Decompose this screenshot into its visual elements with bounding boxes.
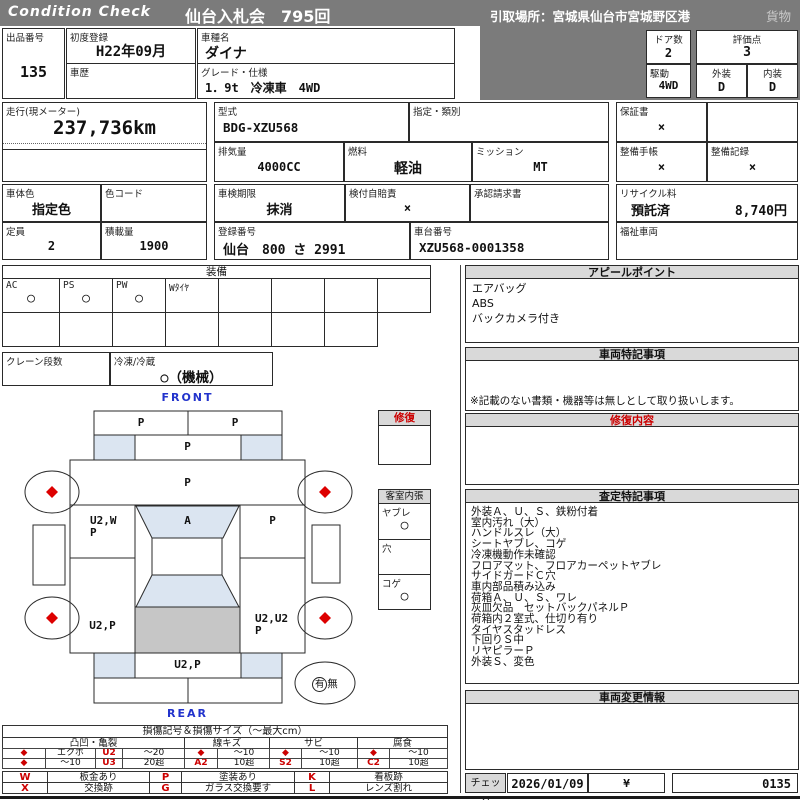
check-yen-cell: ¥: [588, 773, 665, 793]
right-step: [312, 525, 340, 583]
capacity-box: 定員 2: [2, 222, 101, 260]
equip-ps-value: ○: [60, 291, 112, 306]
drive-label: 駆動: [650, 66, 669, 80]
legend-sym-g: G: [149, 782, 182, 794]
brand-title: Condition Check: [8, 4, 151, 20]
recycle-fee: 8,740円: [735, 200, 787, 219]
panel-mark-front-bumper-r: P: [188, 417, 282, 429]
class-label: 指定・類別: [413, 104, 461, 118]
chassis-box: 車台番号 XZU568-0001358: [410, 222, 609, 260]
side-right-mark-2: P: [255, 625, 288, 637]
welfare-box: 福祉車両: [616, 222, 798, 260]
equipment-cell: [271, 312, 325, 347]
welfare-label: 福祉車両: [620, 224, 658, 238]
color-code-label: 色コード: [105, 186, 143, 200]
panel-mark-hood: P: [135, 441, 240, 453]
equip-pw-value: ○: [113, 291, 165, 306]
panel-mark-rear-panel: U2,P: [135, 659, 240, 671]
equipment-title: 装備: [206, 266, 227, 278]
drive-box: 駆動 4WD: [646, 64, 691, 98]
spare-yes: 有: [312, 677, 327, 692]
drive-value: 4WD: [647, 79, 690, 92]
first-reg-value: H22年09月: [67, 41, 195, 61]
exterior-value: D: [697, 80, 746, 94]
divider-solid: [3, 149, 206, 150]
rear-label: REAR: [135, 707, 240, 720]
legend-desc: ガラス交換要す: [181, 782, 295, 794]
score-value: 3: [697, 45, 797, 60]
load-label: 積載量: [105, 224, 134, 238]
recycle-status: 預託済: [631, 200, 670, 219]
divider-dotted: [3, 143, 206, 144]
appeal-header: アピールポイント: [465, 265, 799, 279]
interior-grade-box: 内装 D: [747, 64, 798, 98]
crane-label: クレーン段数: [6, 354, 63, 368]
equip-wtire-label: Wﾀｲﾔ: [169, 280, 189, 294]
equipment-cell: [377, 278, 431, 313]
approval-box: 承認請求書: [470, 184, 609, 222]
repair-body: [465, 426, 799, 485]
auction-title: 仙台入札会 795回: [185, 3, 330, 27]
first-registration-box: 初度登録 H22年09月: [66, 28, 196, 64]
reg-no-value: 仙台 800 さ 2991: [223, 239, 345, 258]
front-corner-right: [241, 435, 282, 460]
history-box: 車歴: [66, 63, 196, 99]
left-step: [33, 525, 65, 585]
equipment-header: 装備: [2, 265, 431, 279]
legend-desc: 交換跡: [47, 782, 150, 794]
lot-number: 135: [3, 63, 64, 81]
damage-diamond-icon: [46, 612, 58, 624]
recycle-box: リサイクル料 預託済 8,740円: [616, 184, 798, 222]
legend-code-c2: C2: [357, 758, 390, 769]
equipment-cell: [324, 312, 378, 347]
exterior-grade-box: 外装 D: [696, 64, 747, 98]
equip-ac-value: ○: [3, 291, 59, 306]
legend-code-u3: U3: [95, 758, 123, 769]
change-info-body: [465, 703, 799, 770]
appeal-line: バックカメラ付き: [472, 311, 792, 326]
equip-ps-label: PS: [63, 280, 74, 291]
displacement-value: 4000CC: [215, 160, 343, 174]
appeal-body: エアバッグ ABS バックカメラ付き: [465, 278, 799, 343]
cabin-burn-cell: コゲ ○: [378, 574, 431, 610]
cabin-hole-cell: 穴: [378, 539, 431, 575]
model-value: ダイナ: [205, 43, 247, 63]
exterior-label: 外装: [697, 66, 746, 80]
warranty-value: ×: [617, 120, 706, 134]
mission-value: MT: [473, 160, 608, 174]
doors-label: ドア数: [647, 32, 690, 46]
appeal-line: エアバッグ: [472, 281, 792, 296]
class-box: 指定・類別: [409, 102, 609, 142]
legend-desc: レンズ割れ: [329, 782, 448, 794]
rear-glass-shape: [136, 575, 239, 607]
check-yen: ¥: [589, 777, 664, 790]
equipment-cell: AC ○: [2, 278, 60, 313]
assessment-line: 外装Ｓ、変色: [471, 657, 793, 668]
rear-corner-left: [94, 653, 135, 678]
equipment-cell: [165, 312, 219, 347]
legend-title: 損傷記号＆損傷サイズ（～最大cm）: [143, 726, 308, 737]
door-right: [240, 505, 305, 558]
inspection-label: 車検期限: [218, 186, 256, 200]
legend-sym-x: X: [2, 782, 48, 794]
inspection-box: 車検期限 抹消: [214, 184, 345, 222]
check-code: 0135: [762, 777, 791, 791]
type-label: 型式: [218, 104, 237, 118]
chassis-value: XZU568-0001358: [419, 240, 524, 255]
cabin-burn-label: コゲ: [382, 576, 401, 590]
insurance-value: ×: [346, 201, 469, 215]
damage-diamond-icon: [46, 486, 58, 498]
lot-label: 出品番号: [6, 30, 44, 44]
repair-side-body: [378, 425, 431, 465]
damage-diamond-icon: [319, 486, 331, 498]
damage-diamond-icon: [319, 612, 331, 624]
cabin-title: 客室内張: [385, 491, 423, 502]
approval-label: 承認請求書: [474, 186, 522, 200]
reefer-value: ○（機械）: [111, 366, 272, 386]
legend-cell: 20超: [122, 758, 186, 769]
assessment-header: 査定特記事項: [465, 489, 799, 503]
vehicle-notes-text: ※記載のない書類・機器等は無しとして取り扱いします。: [470, 393, 740, 408]
column-divider: [460, 265, 461, 793]
equipment-cell: [218, 278, 272, 313]
body-color-label: 車体色: [6, 186, 35, 200]
legend-cell: 10超: [217, 758, 271, 769]
change-info-header: 車両変更情報: [465, 690, 799, 704]
panel-mark-door-right: P: [240, 515, 305, 527]
check-date: 2026/01/09: [508, 777, 587, 791]
check-code-cell: 0135: [672, 773, 798, 793]
score-label: 評価点: [697, 32, 797, 46]
panel-mark-cab-glass: A: [135, 515, 240, 527]
displacement-label: 排気量: [218, 144, 247, 158]
check-label-cell: チェック: [465, 773, 506, 793]
insurance-label: 検付自賠責: [349, 186, 397, 200]
equipment-cell: [218, 312, 272, 347]
interior-value: D: [748, 80, 797, 94]
category-label: 貨物: [766, 6, 791, 25]
grade-value: 1．9t 冷凍車 4WD: [205, 79, 320, 96]
capacity-value: 2: [3, 239, 100, 253]
cabin-burn-value: ○: [379, 589, 430, 604]
mission-box: ミッション MT: [472, 142, 609, 182]
front-corner-left: [94, 435, 135, 460]
legend-sym-l: L: [294, 782, 330, 794]
cargo-roof: [135, 607, 240, 653]
equipment-cell: [112, 312, 166, 347]
legend-code-s2: S2: [269, 758, 302, 769]
warranty-label: 保証書: [620, 104, 649, 118]
cabin-tear-value: ○: [379, 518, 430, 533]
vehicle-notes-body: ※記載のない書類・機器等は無しとして取り扱いします。: [465, 360, 799, 411]
legend-cell: 10超: [301, 758, 358, 769]
equipment-cell: Wﾀｲﾔ: [165, 278, 219, 313]
fuel-value: 軽油: [345, 158, 471, 178]
type-box: 型式 BDG-XZU568: [214, 102, 409, 142]
fuel-box: 燃料 軽油: [344, 142, 472, 182]
maintenance-record-box: 整備記録 ×: [707, 142, 798, 182]
legend-cell: 10超: [389, 758, 448, 769]
maintenance-record-value: ×: [708, 160, 797, 174]
equipment-cell: [59, 312, 113, 347]
mileage-box: 走行(現メーター) 237,736km: [2, 102, 207, 182]
equipment-cell: [271, 278, 325, 313]
legend-code-a2: A2: [184, 758, 218, 769]
warranty-extra-box: [707, 102, 798, 142]
panel-mark-door-left: U2,W P: [90, 515, 117, 539]
panel-mark-side-left: U2,P: [70, 620, 135, 632]
maintenance-record-label: 整備記録: [711, 144, 749, 158]
cabin-header: 客室内張: [378, 489, 431, 504]
inspection-value: 抹消: [215, 199, 344, 218]
crane-box: クレーン段数: [2, 352, 110, 386]
reg-no-label: 登録番号: [218, 224, 256, 238]
vehicle-notes-header: 車両特記事項: [465, 347, 799, 361]
cabin-tear-cell: ヤブレ ○: [378, 503, 431, 540]
panel-mark-side-right: U2,U2 P: [255, 613, 288, 637]
model-label: 車種名: [201, 30, 230, 44]
repair-side-header: 修復: [378, 410, 431, 426]
mileage-value: 237,736km: [3, 117, 206, 139]
fuel-label: 燃料: [348, 144, 367, 158]
doors-value: 2: [647, 46, 690, 60]
doors-box: ドア数 2: [646, 30, 691, 64]
assessment-line: 冷凍機動作未確認: [471, 550, 793, 561]
reefer-box: 冷凍/冷蔵 ○（機械）: [110, 352, 273, 386]
equipment-cell: [2, 312, 60, 347]
lot-box: 出品番号 135: [2, 28, 65, 99]
grade-label: グレード・仕様: [201, 65, 268, 79]
door-left-mark-2: P: [90, 527, 117, 539]
side-panel-left: [70, 558, 135, 653]
history-label: 車歴: [70, 65, 89, 79]
repair-side-title: 修復: [394, 412, 415, 424]
repair-header: 修復内容: [465, 413, 799, 427]
capacity-label: 定員: [6, 224, 25, 238]
maintenance-book-label: 整備手帳: [620, 144, 658, 158]
equip-ac-label: AC: [6, 280, 17, 291]
maintenance-book-box: 整備手帳 ×: [616, 142, 707, 182]
bottom-rule: [0, 796, 800, 799]
warranty-box: 保証書 ×: [616, 102, 707, 142]
maintenance-book-value: ×: [617, 160, 706, 174]
cabin-tear-label: ヤブレ: [382, 505, 411, 519]
front-label: FRONT: [135, 391, 240, 404]
grade-box: グレード・仕様 1．9t 冷凍車 4WD: [197, 63, 455, 99]
insurance-box: 検付自賠責 ×: [345, 184, 470, 222]
reg-no-box: 登録番号 仙台 800 さ 2991: [214, 222, 410, 260]
body-color-box: 車体色 指定色: [2, 184, 101, 222]
pickup-location: 引取場所：宮城県仙台市宮城野区港: [490, 6, 690, 25]
assessment-body: 外装Ａ、Ｕ、Ｓ、鉄粉付着 室内汚れ（大） ハンドルスレ（大） シートヤブレ、コゲ…: [465, 502, 799, 684]
cabin-hole-label: 穴: [382, 541, 392, 555]
color-code-box: 色コード: [101, 184, 207, 222]
chassis-label: 車台番号: [414, 224, 452, 238]
equipment-cell: PS ○: [59, 278, 113, 313]
check-date-cell: 2026/01/09: [507, 773, 588, 793]
mission-label: ミッション: [476, 144, 524, 158]
recycle-label: リサイクル料: [620, 186, 677, 200]
panel-mark-windshield: P: [70, 477, 305, 489]
rear-corner-right: [241, 653, 282, 678]
spare-no: 無: [327, 678, 338, 690]
body-color-value: 指定色: [3, 199, 100, 218]
auction-sheet: Condition Check 仙台入札会 795回 引取場所：宮城県仙台市宮城…: [0, 0, 800, 800]
displacement-box: 排気量 4000CC: [214, 142, 344, 182]
equipment-cell: [324, 278, 378, 313]
equip-pw-label: PW: [116, 280, 127, 291]
mileage-label: 走行(現メーター): [6, 104, 80, 118]
interior-label: 内装: [748, 66, 797, 80]
equipment-cell: PW ○: [112, 278, 166, 313]
type-value: BDG-XZU568: [223, 120, 298, 135]
score-box: 評価点 3: [696, 30, 798, 64]
side-panel-right: [240, 558, 305, 653]
panel-mark-front-bumper-l: P: [94, 417, 188, 429]
spare-tire-flag: 有無: [295, 676, 355, 692]
diamond-icon: ◆: [2, 758, 46, 769]
model-box: 車種名 ダイナ: [197, 28, 455, 64]
load-box: 積載量 1900: [101, 222, 207, 260]
appeal-line: ABS: [472, 296, 792, 311]
load-value: 1900: [102, 239, 206, 253]
legend-cell: ～10: [45, 758, 96, 769]
